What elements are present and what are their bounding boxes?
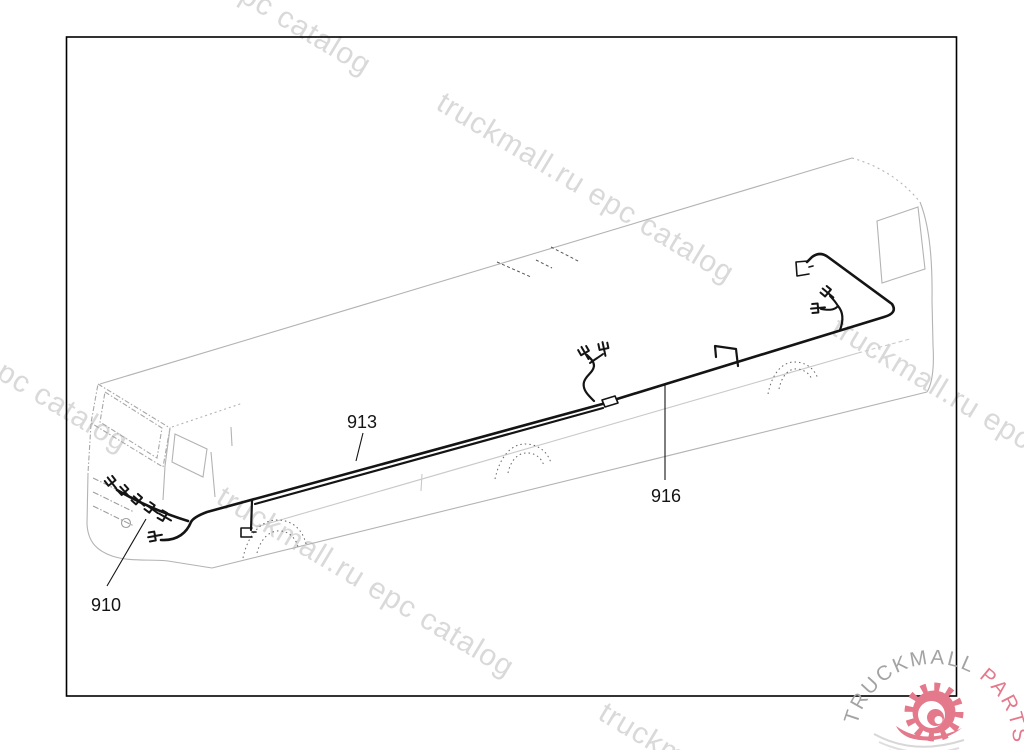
rear-fork-2: [811, 303, 826, 313]
rear-branch-stem: [838, 306, 842, 330]
panel-seam: [421, 474, 422, 491]
callouts: 910 913 916: [91, 385, 681, 615]
front-drop: [251, 501, 252, 530]
leader-line-913: [356, 433, 363, 461]
rear-roof-corner: [852, 158, 920, 202]
skirt-line: [256, 353, 858, 527]
leader-line-910: [107, 519, 146, 586]
door-seam: [211, 452, 215, 497]
part-number-label-913: 913: [347, 412, 377, 432]
front-emblem: [122, 519, 131, 528]
splice-connector: [602, 396, 618, 407]
front-wheel-inner: [257, 531, 298, 553]
roof-line: [100, 158, 852, 384]
door-tick: [231, 427, 232, 446]
a-pillar: [163, 428, 170, 500]
callout-910: 910: [91, 519, 146, 615]
wheel-arches: [243, 362, 818, 558]
main-run-double: [255, 408, 603, 504]
frame-border: [67, 37, 957, 696]
mid-fork-2: [598, 341, 610, 357]
cab-front-edge: [88, 424, 91, 473]
mid-branch-2: [590, 354, 603, 363]
windshield-outer: [91, 384, 170, 467]
rear-edge: [920, 202, 933, 392]
gear-icon: [896, 687, 962, 740]
bus-outline: [87, 158, 933, 568]
rear-fork-1: [820, 285, 837, 301]
diagram-canvas: 910 913 916: [0, 0, 1024, 750]
windshield-inner: [100, 392, 162, 458]
cab-roof-edge: [172, 403, 243, 427]
rear-wheel-inner: [779, 369, 812, 389]
rear-window: [877, 207, 925, 283]
front-drop-connector: [241, 528, 256, 537]
wiring-harness: [104, 254, 894, 542]
middle-wheel-inner: [508, 453, 544, 473]
side-window: [172, 434, 207, 477]
rear-end-connector: [796, 261, 813, 276]
skirt-line-rear: [858, 339, 910, 353]
brand-logo: TRUCKMALL PARTS: [840, 646, 1024, 750]
front-run: [161, 403, 606, 540]
part-number-label-916: 916: [651, 486, 681, 506]
callout-916: 916: [651, 385, 681, 506]
part-number-label-910: 910: [91, 595, 121, 615]
catalog-figure-page: truckmall.ru epc catalog truckmall.ru ep…: [0, 0, 1024, 750]
rear-run: [617, 254, 894, 399]
brand-suffix: PARTS: [976, 664, 1024, 746]
middle-wheel-arch: [495, 444, 551, 479]
callout-913: 913: [347, 412, 377, 461]
roof-hatch-marks: [497, 247, 580, 277]
